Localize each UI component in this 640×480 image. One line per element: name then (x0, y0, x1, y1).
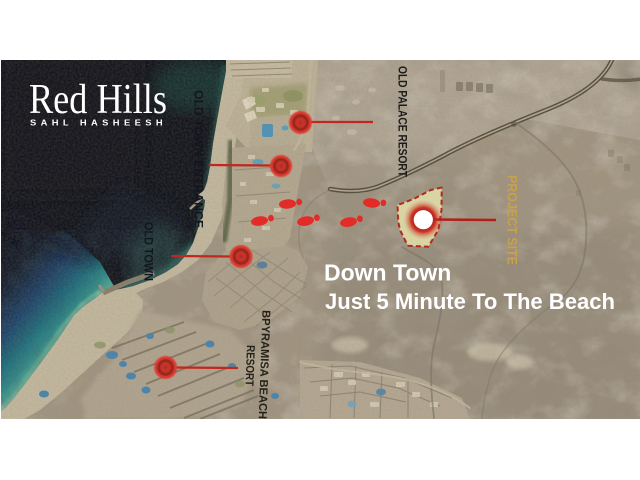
svg-text:Down Town: Down Town (324, 260, 451, 286)
svg-text:Red Hills: Red Hills (29, 77, 167, 123)
svg-text:OLD PALACE RESORT: OLD PALACE RESORT (396, 66, 408, 177)
svg-text:PROJECT SITE: PROJECT SITE (505, 175, 520, 265)
svg-text:SAHL HASHEESH: SAHL HASHEESH (30, 118, 167, 128)
svg-text:RESORT: RESORT (243, 345, 256, 386)
svg-text:OLD TOWN: OLD TOWN (142, 222, 154, 281)
svg-text:OLD TOWN ENTRANCE: OLD TOWN ENTRANCE (192, 90, 204, 228)
svg-text:Just 5 Minute To The Beach: Just 5 Minute To The Beach (325, 289, 615, 314)
